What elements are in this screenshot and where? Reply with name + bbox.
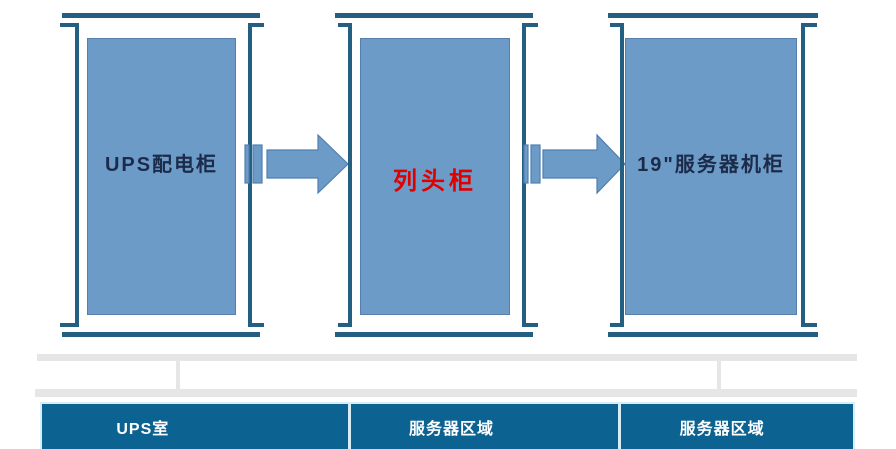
flow-arrow-1 [243,133,350,195]
cabinet-unit-row-head: 列头柜 [335,0,540,345]
zone-cell-server-area-2: 服务器区域 [618,404,853,449]
arrow-stripe-thin [524,145,528,183]
connector-bar-bottom [35,389,857,397]
zone-cell-ups-room: UPS室 [42,404,348,449]
cabinet-label: 19"服务器机柜 [637,148,785,177]
top-rail-line [335,13,533,18]
left-bracket [338,23,352,327]
zone-label: 服务器区域 [409,415,494,439]
arrow-stripe-thick [531,145,540,183]
cabinet-label: UPS配电柜 [105,148,218,177]
zone-label: 服务器区域 [680,415,765,439]
zone-cell-server-area-1: 服务器区域 [348,404,619,449]
cabinet-box-server-rack: 19"服务器机柜 [625,38,797,315]
left-bracket [60,23,79,327]
arrow-stripe-thick [253,145,262,183]
zone-bar: UPS室 服务器区域 服务器区域 [40,402,855,449]
connector-drop-right [717,357,721,393]
bottom-rail-line [608,332,818,337]
cabinet-label: 列头柜 [393,161,477,196]
connector-drop-left [176,357,180,393]
top-rail-line [608,13,818,18]
arrow-stripe-thin [245,145,249,183]
right-bracket [801,23,817,327]
bottom-rail-line [335,332,533,337]
bottom-rail-line [62,332,260,337]
cabinet-unit-ups: UPS配电柜 [60,0,260,345]
top-rail-line [62,13,260,18]
cabinet-unit-server-rack: 19"服务器机柜 [608,0,820,345]
diagram-canvas: UPS配电柜 列头柜 19"服务器机柜 [0,0,896,449]
zone-label: UPS室 [116,415,169,439]
cabinet-box-ups: UPS配电柜 [87,38,236,315]
left-bracket [610,23,624,327]
cabinet-box-row-head: 列头柜 [360,38,510,315]
connector-bar-top [37,354,857,361]
